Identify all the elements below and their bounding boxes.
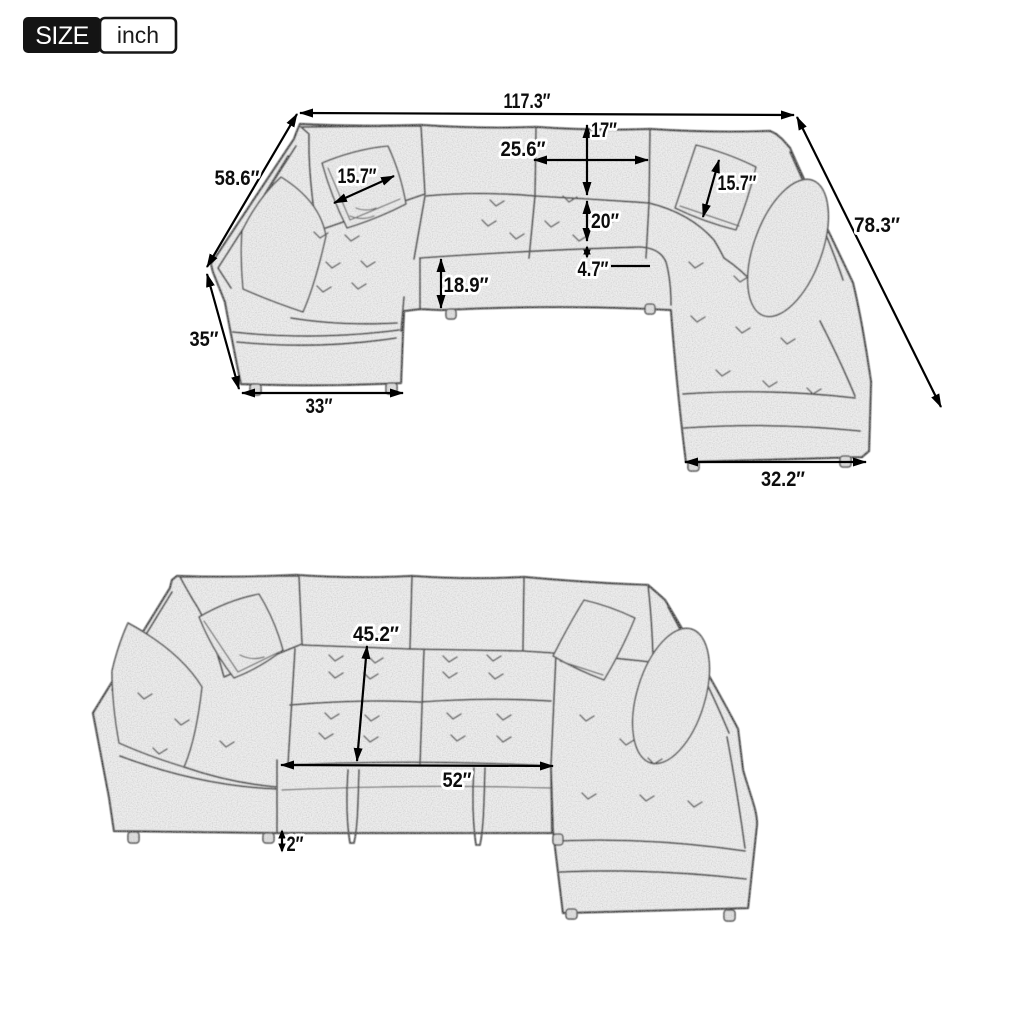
svg-text:78.3″: 78.3″ <box>854 214 900 237</box>
svg-text:SIZE: SIZE <box>35 22 89 50</box>
svg-text:15.7″: 15.7″ <box>718 172 757 195</box>
svg-text:45.2″: 45.2″ <box>353 623 399 646</box>
svg-text:58.6″: 58.6″ <box>215 167 260 190</box>
svg-text:inch: inch <box>117 22 159 48</box>
svg-text:2″: 2″ <box>287 833 304 856</box>
svg-text:117.3″: 117.3″ <box>504 90 551 113</box>
svg-text:15.7″: 15.7″ <box>338 165 377 188</box>
svg-text:17″: 17″ <box>591 119 617 142</box>
svg-text:35″: 35″ <box>190 328 219 351</box>
svg-text:20″: 20″ <box>591 210 619 233</box>
svg-text:33″: 33″ <box>306 395 333 418</box>
svg-text:32.2″: 32.2″ <box>761 468 805 491</box>
svg-text:18.9″: 18.9″ <box>444 274 489 297</box>
svg-text:4.7″: 4.7″ <box>578 258 609 281</box>
svg-text:25.6″: 25.6″ <box>501 138 546 161</box>
svg-text:52″: 52″ <box>443 769 472 792</box>
